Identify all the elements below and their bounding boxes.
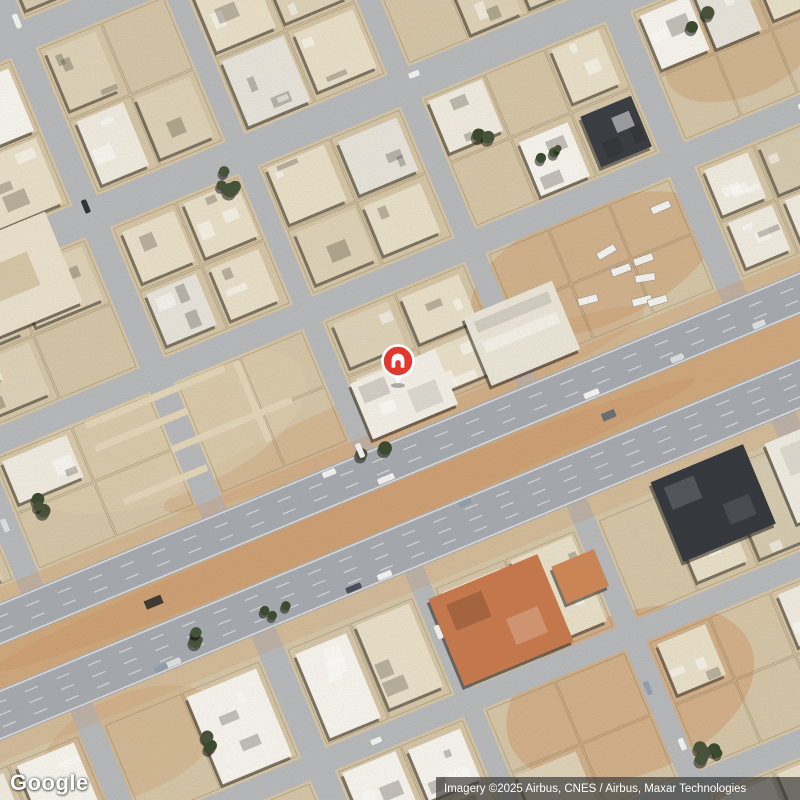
map-canvas[interactable] <box>0 0 800 800</box>
attribution-bar: Imagery ©2025 Airbus, CNES / Airbus, Max… <box>436 777 800 800</box>
place-marker[interactable] <box>376 339 420 397</box>
place-marker-graphic <box>376 339 420 397</box>
google-logo: Google <box>10 770 89 796</box>
imagery-attribution: Imagery ©2025 Airbus, CNES / Airbus, Max… <box>444 783 746 795</box>
marker-circle <box>383 346 414 377</box>
marker-shadow <box>391 383 405 388</box>
satellite-map-viewport[interactable]: Google Imagery ©2025 Airbus, CNES / Airb… <box>0 0 800 800</box>
